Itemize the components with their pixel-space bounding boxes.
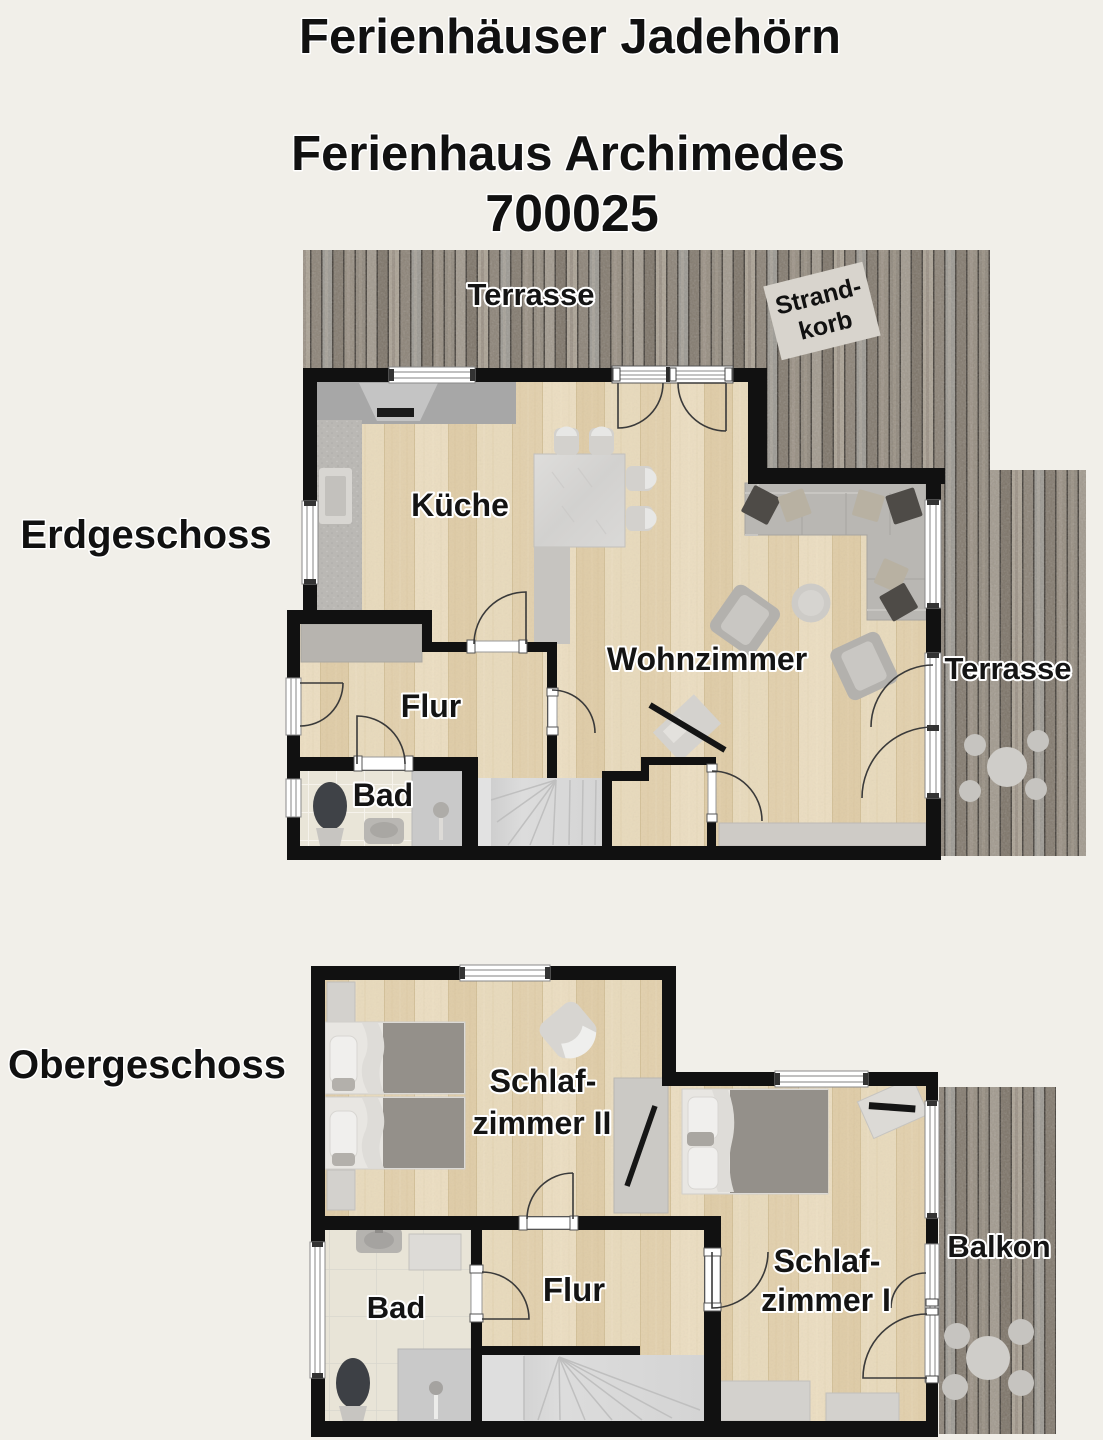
- svg-text:Balkon: Balkon: [947, 1229, 1050, 1264]
- svg-text:Terrasse: Terrasse: [468, 277, 595, 312]
- svg-text:Schlaf-: Schlaf-: [774, 1243, 881, 1279]
- svg-text:zimmer I: zimmer I: [761, 1282, 891, 1318]
- svg-text:Flur: Flur: [543, 1271, 605, 1308]
- svg-text:Terrasse: Terrasse: [945, 651, 1072, 686]
- svg-text:Bad: Bad: [367, 1290, 426, 1325]
- svg-text:700025: 700025: [485, 185, 659, 243]
- svg-text:Wohnzimmer: Wohnzimmer: [607, 641, 807, 677]
- svg-text:Ferienhäuser Jadehörn: Ferienhäuser Jadehörn: [299, 10, 841, 64]
- svg-text:Schlaf-: Schlaf-: [490, 1063, 597, 1099]
- svg-text:Küche: Küche: [411, 487, 509, 523]
- svg-text:Bad: Bad: [353, 777, 413, 813]
- svg-text:Flur: Flur: [401, 688, 461, 724]
- svg-text:Ferienhaus Archimedes: Ferienhaus Archimedes: [291, 127, 845, 181]
- svg-text:Erdgeschoss: Erdgeschoss: [20, 513, 271, 557]
- svg-text:zimmer II: zimmer II: [473, 1105, 612, 1141]
- svg-text:Obergeschoss: Obergeschoss: [8, 1043, 286, 1087]
